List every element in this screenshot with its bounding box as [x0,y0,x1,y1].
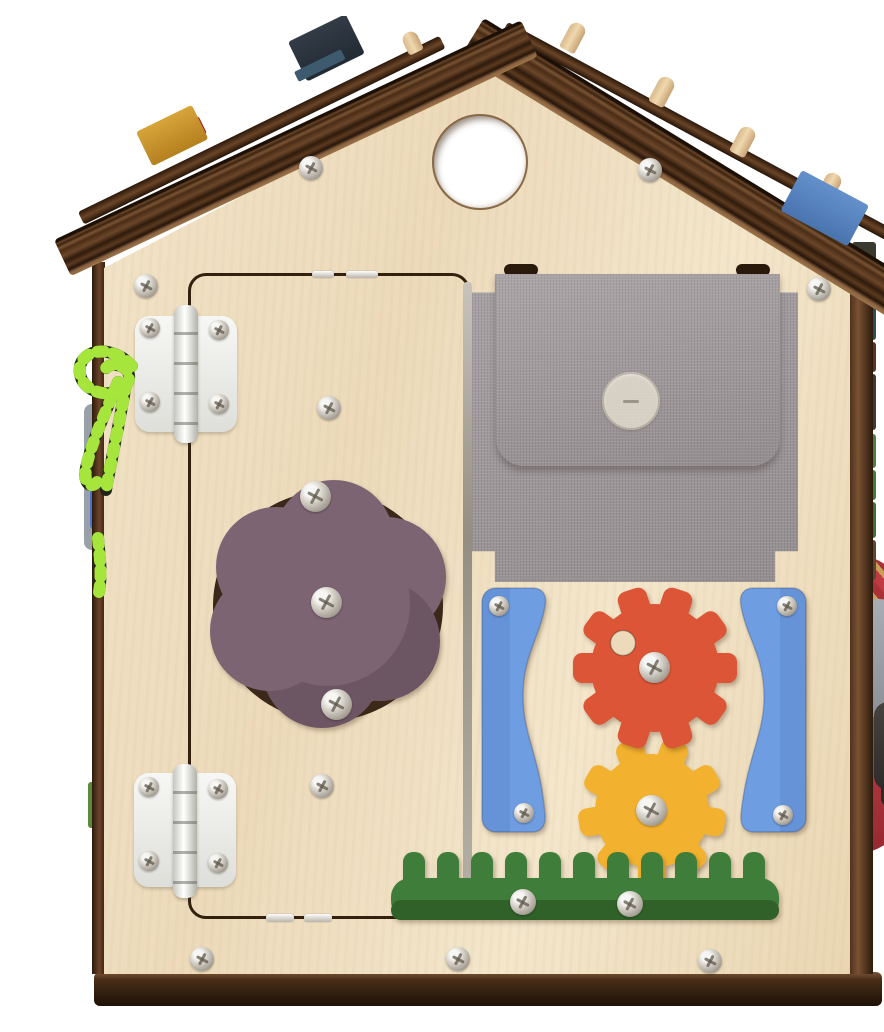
lace [80,352,132,592]
flower-screw [300,481,331,512]
screw [510,889,536,915]
screw [777,596,797,616]
screw [446,947,470,971]
screw [514,803,534,823]
hinge-screw [139,851,159,871]
screw [698,949,722,973]
screw [299,156,323,180]
blue-panel-left [482,588,545,832]
grass-bar-shade [391,900,779,920]
blue-panel-right [741,588,806,832]
hinge-screw [140,392,160,412]
gear-axle-screw [639,652,670,683]
flower-screw [321,689,352,720]
gear-finger-hole [611,631,636,656]
screw [617,891,643,917]
hinge-screw [139,777,159,797]
hinge-screw [208,779,228,799]
lace-bit-stripes [98,538,101,592]
play-elements-layer [40,16,884,1016]
hinge-screw [209,394,229,414]
blue-panel-left-shade [482,588,510,832]
grass-rack [391,852,779,920]
flower-screw [311,587,342,618]
hinge-screw [208,853,228,873]
screw [134,274,158,298]
screw [190,947,214,971]
screw [773,805,793,825]
hinge-screw [140,318,160,338]
gear-axle-screw [636,795,667,826]
screw [638,158,662,182]
screw [310,774,334,798]
screw [489,596,509,616]
screw [317,396,341,420]
busyboard-house [40,16,884,1016]
blue-panel-right-shade [780,588,806,832]
screw [807,277,831,301]
hinge-screw [209,320,229,340]
